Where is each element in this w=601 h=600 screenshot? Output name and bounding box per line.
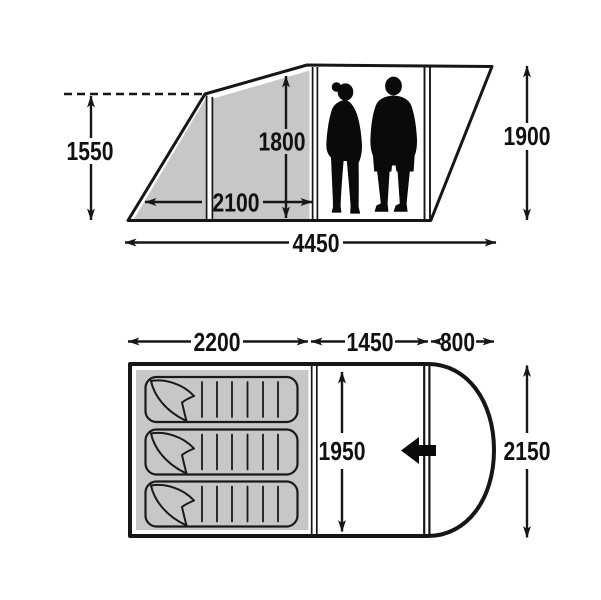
inner-tent-front-divider bbox=[313, 67, 318, 219]
door-direction-arrow-icon bbox=[401, 437, 436, 464]
diagram-svg: 1550 1800 2100 1900 4450 bbox=[0, 0, 601, 600]
living-area-length-label: 1450 bbox=[347, 327, 394, 357]
woman-silhouette bbox=[326, 82, 362, 213]
interior-width-label: 1950 bbox=[319, 436, 366, 466]
inner-tent-rear-divider bbox=[425, 66, 431, 220]
awning-peak-height-label: 1550 bbox=[67, 136, 114, 166]
floor-plan-view: 2200 1450 800 1950 2150 bbox=[128, 327, 551, 538]
dim-interior-width: 1950 bbox=[319, 372, 366, 532]
rear-height-label: 1900 bbox=[504, 121, 551, 151]
dim-rear-height: 1900 bbox=[504, 66, 551, 220]
interior-height-label: 1800 bbox=[259, 127, 306, 157]
porch-depth-label: 800 bbox=[440, 327, 475, 357]
plan-front-divider bbox=[312, 366, 317, 534]
man-silhouette bbox=[370, 77, 417, 212]
dim-total-length: 4450 bbox=[125, 228, 496, 258]
total-length-label: 4450 bbox=[293, 228, 340, 258]
dim-living-area-length: 1450 bbox=[311, 327, 428, 357]
awning-depth-label: 2100 bbox=[213, 188, 260, 218]
tent-dimensions-diagram: 1550 1800 2100 1900 4450 bbox=[0, 0, 601, 600]
bedroom-length-label: 2200 bbox=[194, 327, 241, 357]
dim-overall-width: 2150 bbox=[504, 366, 551, 538]
dim-awning-peak-height: 1550 bbox=[67, 96, 114, 220]
dim-bedroom-length: 2200 bbox=[128, 327, 308, 357]
side-elevation-view: 1550 1800 2100 1900 4450 bbox=[64, 65, 551, 258]
overall-width-label: 2150 bbox=[504, 436, 551, 466]
dim-porch-depth: 800 bbox=[431, 327, 494, 357]
